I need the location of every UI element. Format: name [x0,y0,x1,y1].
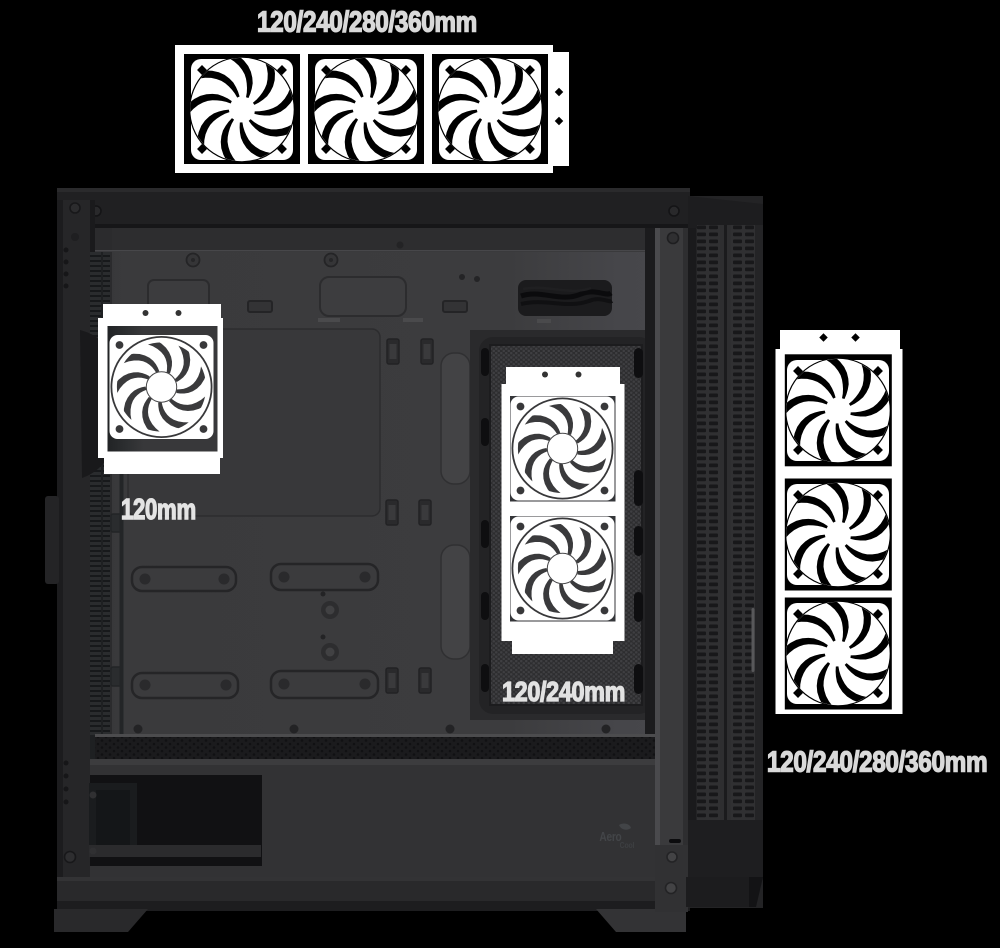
svg-text:120/240/280/360mm: 120/240/280/360mm [767,746,987,778]
svg-text:120/240mm: 120/240mm [502,677,625,707]
svg-text:120/240/280/360mm: 120/240/280/360mm [257,5,477,38]
svg-text:120mm: 120mm [121,494,196,525]
svg-text:Aero: Aero [599,831,621,844]
svg-text:Cool: Cool [620,840,635,850]
